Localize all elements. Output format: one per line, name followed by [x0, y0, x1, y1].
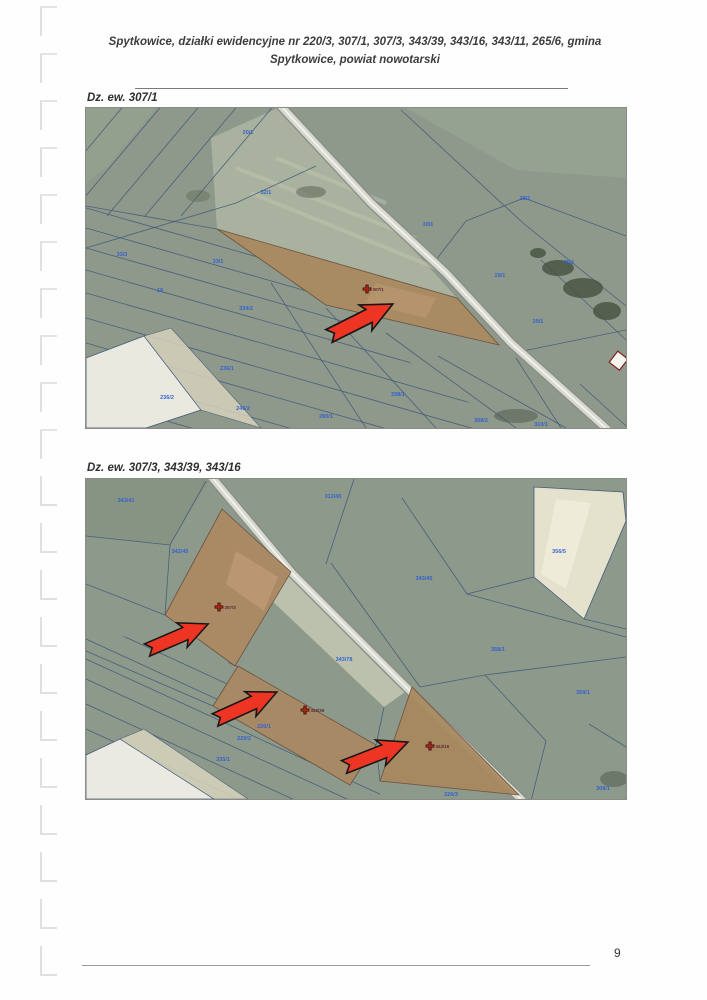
- binding-mark: [40, 429, 57, 459]
- binding-mark: [40, 194, 57, 224]
- parcel-number-label: 334/2: [239, 306, 253, 312]
- parcel-number-label: 358/1: [491, 647, 505, 653]
- binding-mark: [40, 523, 57, 553]
- parcel-number-label: 220/1: [257, 724, 271, 730]
- parcel-number-label: 298/1: [391, 392, 405, 398]
- binding-mark: [40, 805, 57, 835]
- parcel-markers: 307/1: [363, 285, 384, 293]
- parcel-number-label: 30/1: [423, 222, 434, 228]
- header-rule: [135, 88, 568, 89]
- binding-mark: [40, 147, 57, 177]
- parcel-number-label: 343/41: [118, 498, 135, 504]
- parcel-number-label: 310/1: [534, 422, 548, 428]
- binding-mark: [40, 288, 57, 318]
- parcel-number-label: 220/3: [444, 792, 458, 798]
- parcel-number-label: 236/1: [220, 366, 234, 372]
- binding-mark: [40, 664, 57, 694]
- binding-mark: [40, 100, 57, 130]
- binding-mark: [40, 241, 57, 271]
- parcel-number-label: 343/78: [336, 657, 353, 663]
- parcel-number-label: 356/5: [552, 549, 566, 555]
- parcel-number-label: 236/2: [160, 395, 174, 401]
- parcel-number-label: 29/1: [495, 273, 506, 279]
- binding-mark: [40, 617, 57, 647]
- binding-mark: [40, 570, 57, 600]
- section-label-307-3: Dz. ew. 307/3, 343/39, 343/16: [87, 462, 241, 474]
- binding-mark: [40, 711, 57, 741]
- cadastral-map-307-3-343-39-343-16: 343/41312/45342/45343/45356/5358/1343/78…: [85, 478, 627, 800]
- parcel-number-label: 20/1: [243, 130, 254, 136]
- parcel-number-label: 312/45: [325, 494, 342, 500]
- binding-mark: [40, 946, 57, 976]
- binding-mark: [40, 852, 57, 882]
- parcel-number-label: 39/1: [533, 319, 544, 325]
- parcel-number-label: 18: [157, 288, 163, 294]
- parcel-number-label: 308/1: [596, 786, 610, 792]
- cadastral-map-2-svg: 343/41312/45342/45343/45356/5358/1343/78…: [86, 479, 626, 799]
- dark-patch: [296, 186, 326, 198]
- marker-parcel-label: 343/16: [436, 744, 450, 749]
- binding-mark: [40, 6, 57, 36]
- cadastral-map-1-svg: 20/132/133/333/118334/2236/1236/2246/228…: [86, 108, 626, 428]
- parcel-number-label: 28/1: [520, 196, 531, 202]
- marker-parcel-label: 307/3: [225, 605, 237, 610]
- parcel-number-label: 33/3: [117, 252, 128, 258]
- parcel-number-label: 342/45: [172, 549, 189, 555]
- binding-mark: [40, 53, 57, 83]
- marker-parcel-label: 343/39: [311, 708, 325, 713]
- parcel-number-label: 280/1: [319, 414, 333, 420]
- dark-patch: [494, 409, 538, 423]
- binding-mark: [40, 382, 57, 412]
- parcel-number-label: 32/1: [261, 190, 272, 196]
- binding-mark: [40, 335, 57, 365]
- binding-mark: [40, 476, 57, 506]
- page-title: Spytkowice, działki ewidencyjne nr 220/3…: [85, 34, 625, 70]
- parcel-number-label: 335/1: [216, 757, 230, 763]
- parcel-number-label: 343/45: [416, 576, 433, 582]
- marker-parcel-label: 307/1: [373, 287, 385, 292]
- parcel-number-label: 308/2: [474, 418, 488, 424]
- binding-mark: [40, 758, 57, 788]
- footer-rule: [82, 965, 590, 966]
- scanned-document-page: Spytkowice, działki ewidencyjne nr 220/3…: [0, 0, 707, 1000]
- parcel-number-label: 359/1: [576, 690, 590, 696]
- binding-mark: [40, 899, 57, 929]
- dark-patch: [186, 190, 210, 202]
- parcel-number-label: 246/2: [236, 406, 250, 412]
- parcel-number-label: 220/2: [237, 736, 251, 742]
- parcel-number-label: 33/1: [213, 259, 224, 265]
- page-number: 9: [614, 946, 621, 960]
- section-label-307-1: Dz. ew. 307/1: [87, 92, 158, 104]
- cadastral-map-307-1: 20/132/133/333/118334/2236/1236/2246/228…: [85, 107, 627, 429]
- parcel-number-label: 35/1: [564, 260, 575, 266]
